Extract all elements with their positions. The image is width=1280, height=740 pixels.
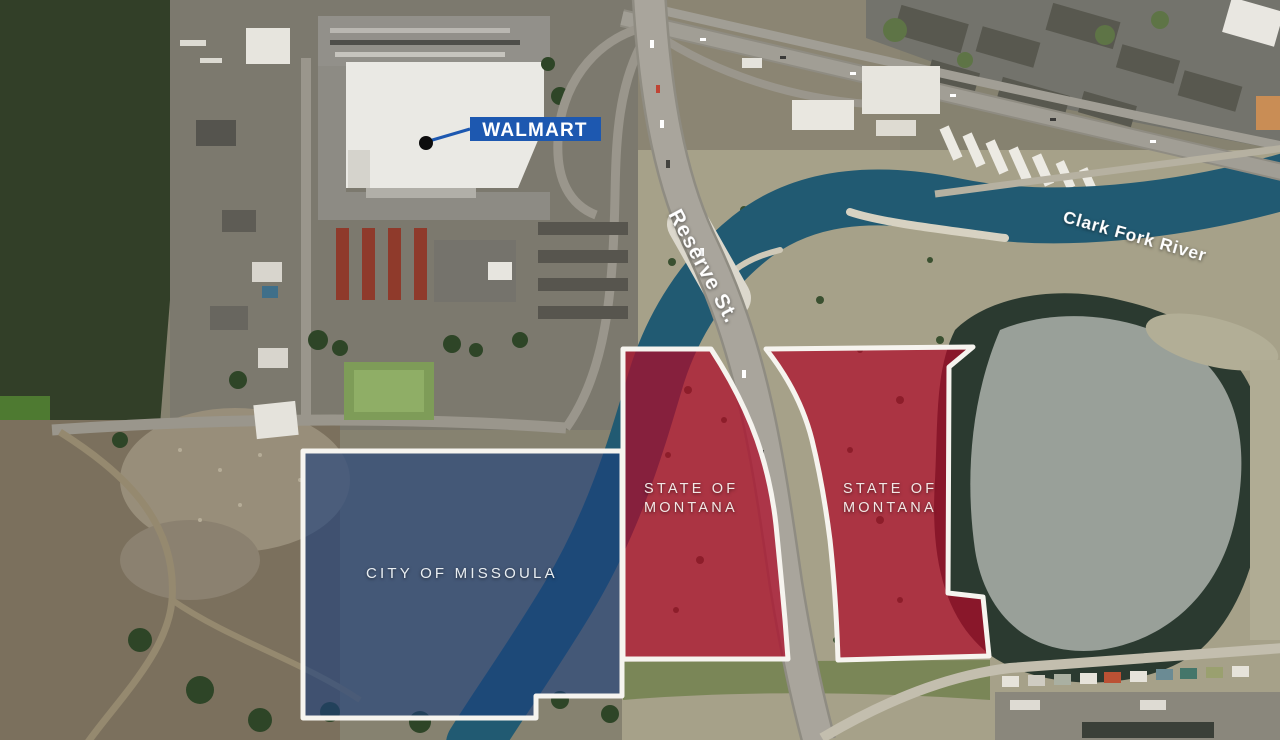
map-canvas: Reserve St. Clark Fork River CITY OF MIS… — [0, 0, 1280, 740]
state-of-montana-east-label-line2: MONTANA — [843, 500, 937, 516]
city-of-missoula-parcel — [303, 451, 622, 718]
state-of-montana-west-label-line2: MONTANA — [644, 500, 738, 516]
state-of-montana-east-label-line1: STATE OF — [843, 481, 937, 497]
white-warehouse — [246, 28, 290, 64]
sand-strip — [1250, 360, 1280, 640]
crop-field — [0, 0, 170, 425]
city-of-missoula-label: CITY OF MISSOULA — [366, 565, 558, 582]
walmart-marker-dot — [419, 136, 433, 150]
state-of-montana-west-label-line1: STATE OF — [644, 481, 738, 497]
map-graphic: Reserve St. Clark Fork River CITY OF MIS… — [0, 0, 1280, 740]
white-shed — [253, 401, 298, 439]
dark-building — [1082, 722, 1214, 738]
blue-roof-building — [262, 286, 278, 298]
tan-building — [1256, 96, 1280, 130]
dirt-patch — [120, 520, 260, 600]
walmart-label: WALMART — [482, 120, 588, 141]
